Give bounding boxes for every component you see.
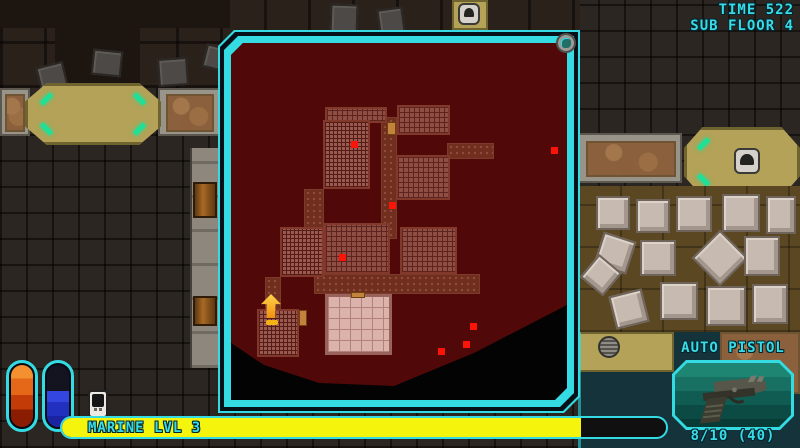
debris-panel (329, 4, 358, 35)
map-room (397, 105, 450, 135)
health-vial-fill (11, 365, 33, 427)
rock-inset (166, 94, 214, 132)
enemy-dot (438, 348, 445, 355)
map-room (304, 189, 324, 229)
floor-label: SUB FLOOR 4 (690, 18, 794, 34)
health-vial (6, 360, 38, 432)
crate (752, 284, 788, 324)
crate (744, 236, 780, 276)
radio-buttons (90, 408, 106, 411)
wall-strip (190, 148, 220, 368)
map-border-gap (220, 32, 578, 411)
map-room (324, 223, 390, 274)
weapon-slot-inner (675, 363, 791, 427)
copper-cell (193, 182, 217, 218)
teal-corner-light (697, 137, 710, 150)
map-room (323, 120, 370, 189)
ammo-counter: 8/10 (40) (672, 428, 794, 444)
map-explored-region (231, 43, 567, 400)
map-room (325, 294, 392, 355)
map-room (280, 227, 324, 277)
health-vial-tube (11, 365, 33, 427)
enemy-dot (339, 254, 346, 261)
map-room (314, 274, 480, 294)
time-label: TIME 522 (719, 2, 794, 18)
mining-channel (578, 133, 682, 183)
debris-panel (157, 57, 189, 87)
crate (596, 196, 630, 230)
walkway-right (158, 88, 220, 136)
enemy-dot (463, 341, 470, 348)
map-door (387, 122, 396, 135)
map-room (381, 117, 397, 239)
crate (676, 196, 712, 232)
helmet-icon (458, 3, 480, 25)
crate (640, 240, 676, 276)
teal-corner-light (40, 92, 53, 105)
radio-screen (92, 394, 104, 407)
map-room (447, 143, 494, 159)
crate (722, 194, 760, 232)
crate (766, 196, 796, 234)
map-inner-border (224, 36, 574, 407)
crate (636, 199, 670, 233)
teal-corner-light (697, 173, 710, 186)
rock-inset (586, 141, 676, 177)
crate-row (0, 0, 230, 28)
map-room (257, 309, 299, 357)
airlock-platform (25, 83, 161, 145)
teal-corner-light (40, 122, 53, 135)
map-corner-badge[interactable] (556, 33, 576, 53)
map-room (400, 227, 457, 274)
xp-label: MARINE LVL 3 (88, 420, 201, 436)
game-scene: TIME 522 SUB FLOOR 4 AUTO PISTOL 8/10 (4… (0, 0, 800, 448)
map-room (396, 155, 450, 200)
enemy-dot (351, 141, 358, 148)
teal-corner-light (133, 92, 146, 105)
enemy-dot (389, 202, 396, 209)
player-dash (266, 320, 278, 325)
teal-corner-light (133, 122, 146, 135)
crate (706, 286, 746, 326)
weapon-name: AUTO PISTOL (672, 340, 794, 356)
helmet-icon (734, 148, 760, 174)
debris-panel (91, 49, 124, 78)
map-door (299, 310, 307, 326)
copper-cell (193, 296, 217, 326)
crate (660, 282, 698, 320)
map-overlay[interactable] (218, 30, 580, 413)
tan-console (578, 332, 674, 372)
enemy-dot (470, 323, 477, 330)
map-unexplored (231, 43, 567, 400)
weapon-slot[interactable] (672, 360, 794, 430)
radio-icon (88, 390, 108, 418)
pistol-icon (688, 364, 777, 426)
enemy-dot (551, 147, 558, 154)
map-door (351, 292, 365, 298)
badge-core-icon (561, 38, 571, 48)
xp-bar: MARINE LVL 3 (60, 416, 668, 439)
vent-icon (598, 336, 620, 358)
rock-inset (5, 94, 25, 132)
